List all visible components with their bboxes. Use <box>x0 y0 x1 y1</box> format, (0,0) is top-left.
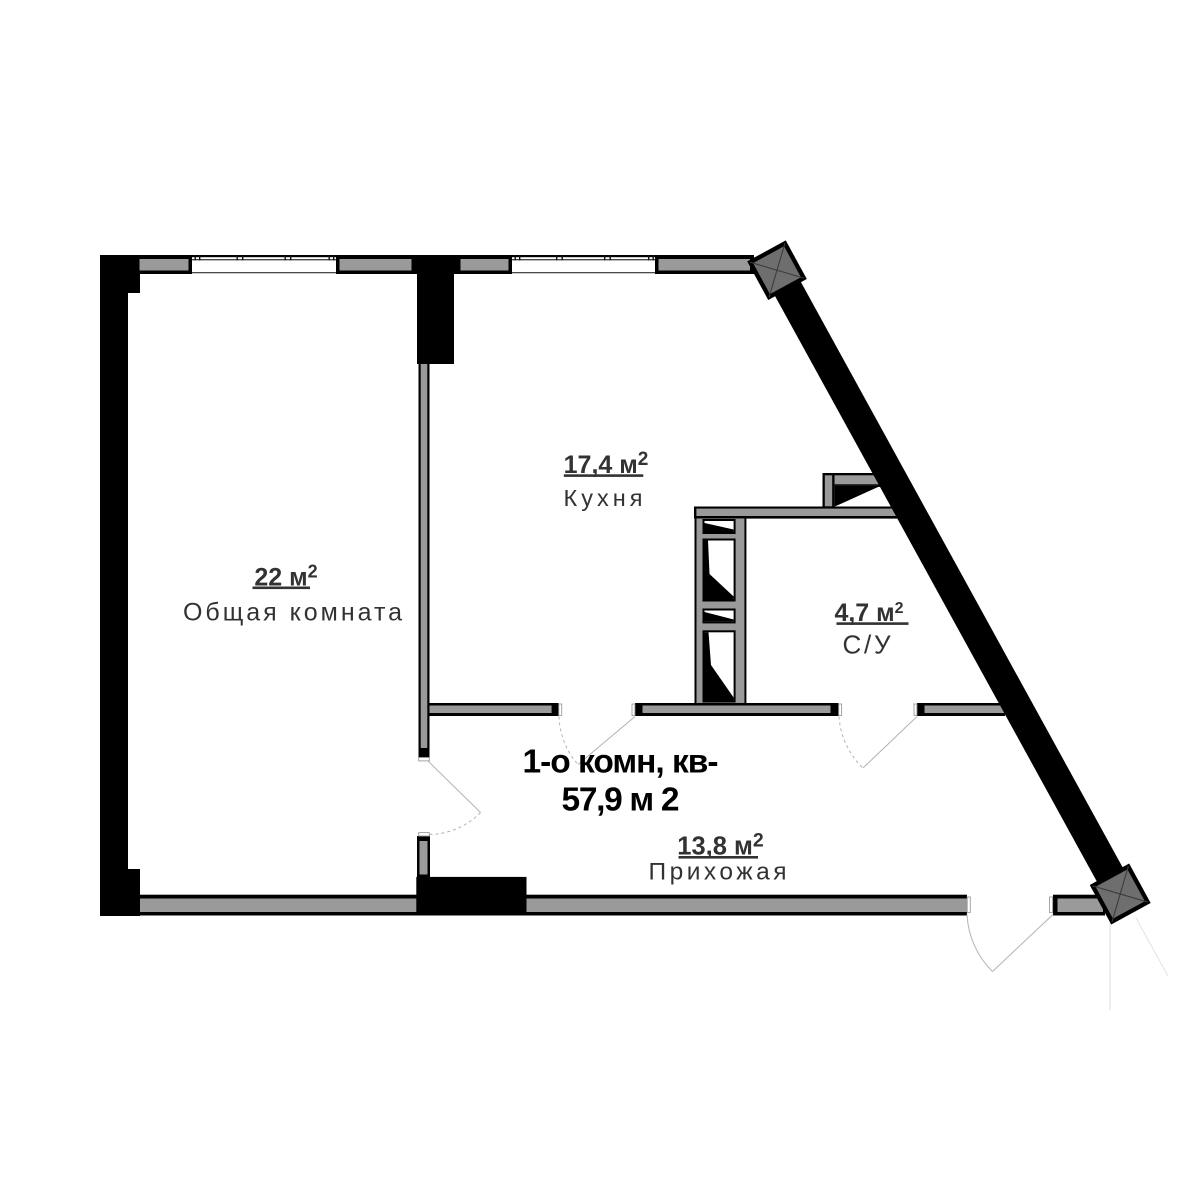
svg-text:Общая комната: Общая комната <box>183 599 402 627</box>
svg-text:1-о комн, кв-: 1-о комн, кв- <box>523 744 719 781</box>
svg-text:Кухня: Кухня <box>564 485 643 511</box>
svg-text:С/У: С/У <box>843 630 891 660</box>
svg-text:13,8 м2: 13,8 м2 <box>677 830 764 861</box>
svg-text:57,9 м 2: 57,9 м 2 <box>562 782 680 819</box>
